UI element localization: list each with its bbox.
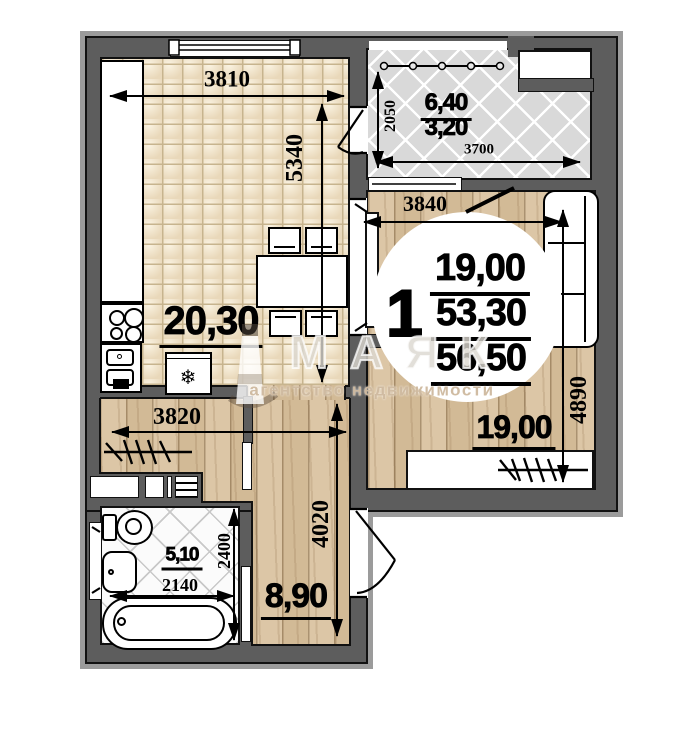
room-area-label: 19,00: [472, 411, 555, 443]
dim-bathroom-width: 2140: [162, 576, 198, 594]
dimension-layer: [0, 0, 680, 741]
unit-rooms-count: 1: [386, 280, 422, 346]
hall-area-label: 8,90: [261, 579, 331, 613]
dim-balcony-width: 3700: [464, 143, 494, 158]
unit-living-area: 19,00: [430, 249, 530, 287]
unit-secondary-area: 53,30: [431, 294, 531, 332]
balcony-area-full-label: 6,40: [421, 91, 472, 115]
unit-total-area: 56,50: [431, 339, 531, 377]
floor-plan: ❄: [0, 0, 680, 741]
dim-hall-length: 4020: [309, 500, 333, 548]
dim-room-length: 4890: [567, 376, 591, 424]
dim-kitchen-width: 3810: [204, 68, 250, 91]
kitchen-area-label: 20,30: [159, 301, 262, 341]
bathroom-area-label: 5,10: [162, 546, 203, 565]
dim-kitchen-length: 5340: [283, 134, 307, 182]
dim-room-width: 3840: [403, 193, 447, 215]
dim-hall-width: 3820: [153, 405, 201, 429]
balcony-railing-icon: [381, 63, 504, 70]
balcony-area-reduced-label: 3,20: [425, 116, 468, 140]
dim-balcony-depth: 2050: [383, 100, 399, 132]
dim-bathroom-depth: 2400: [215, 533, 233, 569]
